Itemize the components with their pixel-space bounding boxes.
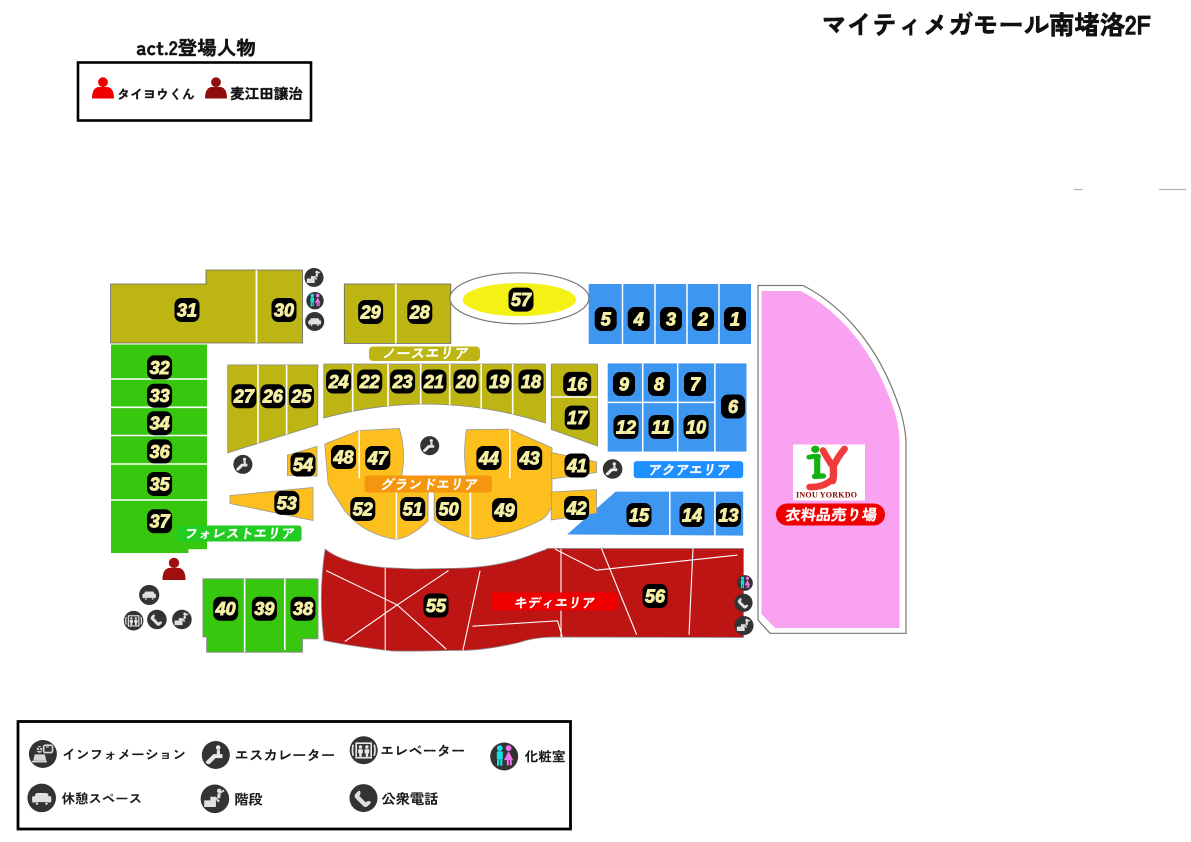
svg-text:56: 56	[645, 586, 666, 606]
svg-text:5: 5	[601, 309, 612, 329]
svg-text:29: 29	[360, 302, 381, 322]
svg-text:35: 35	[150, 474, 171, 494]
svg-text:3: 3	[666, 309, 676, 329]
svg-text:13: 13	[718, 505, 738, 525]
svg-text:23: 23	[392, 372, 413, 392]
svg-text:36: 36	[150, 442, 171, 462]
svg-text:50: 50	[439, 499, 459, 519]
svg-text:42: 42	[566, 498, 587, 518]
svg-text:57: 57	[511, 290, 532, 310]
svg-text:38: 38	[293, 599, 313, 619]
svg-text:31: 31	[177, 300, 197, 320]
svg-text:39: 39	[254, 599, 274, 619]
svg-text:48: 48	[332, 447, 353, 467]
svg-text:16: 16	[567, 374, 588, 394]
svg-text:12: 12	[616, 417, 636, 437]
svg-text:53: 53	[277, 493, 297, 513]
svg-text:14: 14	[682, 505, 702, 525]
svg-text:15: 15	[629, 505, 650, 525]
svg-text:41: 41	[566, 456, 587, 476]
svg-text:4: 4	[633, 309, 644, 329]
svg-text:47: 47	[367, 448, 389, 468]
svg-text:28: 28	[409, 302, 430, 322]
svg-text:27: 27	[233, 387, 255, 407]
svg-text:43: 43	[519, 448, 540, 468]
svg-text:20: 20	[455, 372, 476, 392]
svg-text:19: 19	[489, 372, 509, 392]
svg-text:32: 32	[150, 358, 170, 378]
svg-text:25: 25	[290, 387, 312, 407]
svg-text:10: 10	[686, 417, 706, 437]
svg-text:55: 55	[426, 596, 447, 616]
svg-text:8: 8	[654, 374, 664, 394]
svg-text:9: 9	[619, 374, 629, 394]
svg-text:24: 24	[328, 372, 349, 392]
svg-text:51: 51	[403, 499, 423, 519]
svg-text:26: 26	[262, 387, 284, 407]
svg-text:22: 22	[359, 372, 380, 392]
svg-text:44: 44	[478, 448, 499, 468]
svg-text:33: 33	[150, 386, 170, 406]
svg-text:34: 34	[150, 414, 170, 434]
svg-text:17: 17	[567, 408, 588, 428]
svg-text:7: 7	[690, 374, 701, 394]
svg-text:11: 11	[652, 417, 671, 437]
svg-text:40: 40	[215, 599, 236, 619]
svg-text:18: 18	[521, 372, 541, 392]
svg-text:49: 49	[494, 500, 515, 520]
svg-text:54: 54	[293, 455, 313, 475]
svg-text:30: 30	[274, 300, 294, 320]
svg-text:52: 52	[353, 499, 373, 519]
svg-text:37: 37	[150, 512, 171, 532]
svg-text:INOU YORKDO: INOU YORKDO	[796, 491, 857, 500]
svg-text:6: 6	[728, 397, 739, 417]
svg-text:21: 21	[423, 372, 444, 392]
svg-text:2: 2	[697, 309, 708, 329]
svg-text:1: 1	[730, 309, 740, 329]
